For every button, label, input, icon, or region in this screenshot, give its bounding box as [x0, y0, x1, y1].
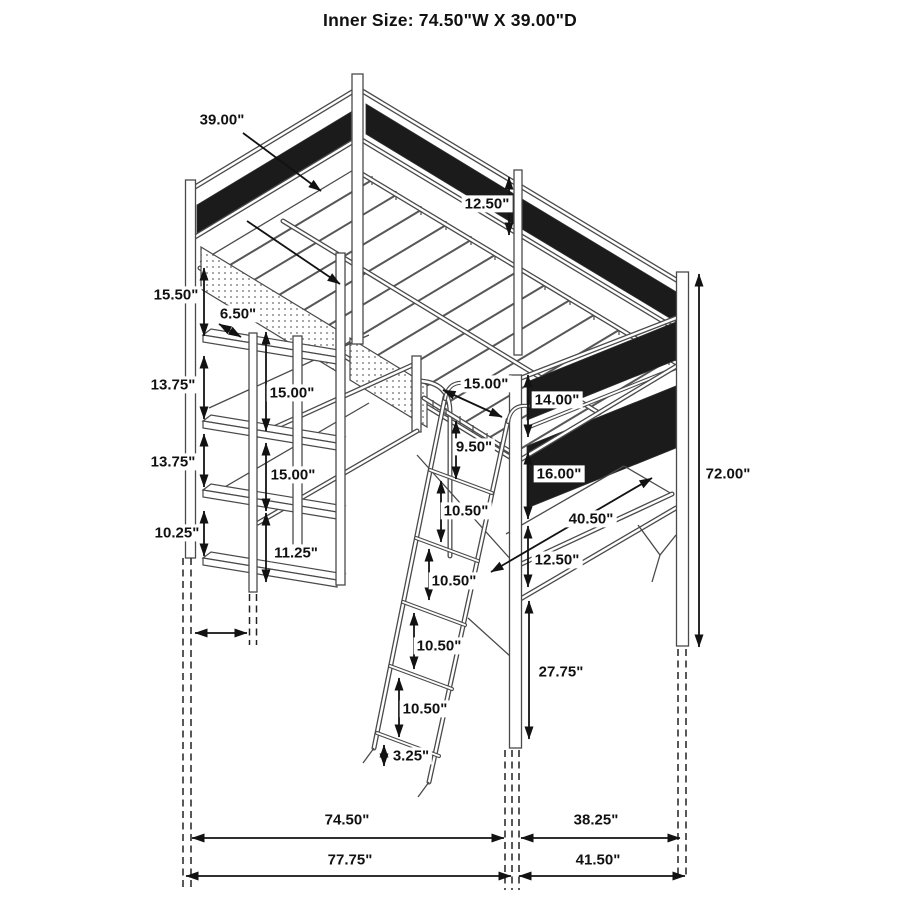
dim-label-desk-to-lower-shelf: 15.00" — [268, 466, 319, 483]
dim-label-overall-height: 72.00" — [703, 465, 754, 482]
dim-label-right-desk-width: 40.50" — [566, 510, 617, 527]
dim-label-right-leg-lower: 27.75" — [536, 663, 587, 680]
dim-label-desk-to-lower-rail: 12.50" — [532, 551, 583, 568]
dim-label-lower-shelf-height: 11.25" — [271, 544, 321, 561]
dim-label-shelf-gap-1: 13.75" — [148, 376, 199, 393]
dim-label-ladder-foot: 3.25" — [390, 747, 432, 764]
ladder — [363, 383, 528, 797]
dim-label-rail-to-ladder: 15.00" — [461, 375, 512, 392]
dim-label-guardrail-height: 12.50" — [462, 195, 513, 212]
dim-label-shelf-gap-2: 13.75" — [148, 453, 199, 470]
dim-label-leg-top-to-shelf: 15.50" — [151, 286, 202, 303]
dim-label-ladder-top-to-step: 9.50" — [453, 438, 495, 455]
dim-label-shelf-to-desk-upper: 15.00" — [267, 384, 318, 401]
dim-label-inner-width: 74.50" — [322, 811, 373, 828]
page-title: Inner Size: 74.50"W X 39.00"D — [0, 10, 900, 31]
dim-label-shelf-depth: 6.50" — [217, 305, 259, 322]
dim-label-overall-width: 77.75" — [325, 851, 376, 868]
dim-label-ladder-step-3: 10.50" — [429, 572, 480, 589]
extension-lines — [183, 558, 686, 890]
loft-bed-dimension-diagram: Inner Size: 74.50"W X 39.00"D 39.00" 12.… — [0, 0, 900, 900]
line-drawing — [0, 0, 900, 900]
arrow-bed-depth-b — [247, 221, 340, 284]
dim-label-ladder-step-5: 10.50" — [400, 700, 451, 717]
dim-label-ladder-step-2: 10.50" — [441, 502, 492, 519]
dim-label-right-panel-lower: 16.00" — [534, 465, 585, 482]
dim-label-shelf-gap-3: 10.25" — [152, 524, 203, 541]
dim-label-right-panel-upper: 14.00" — [532, 391, 583, 408]
dim-label-ladder-step-4: 10.50" — [414, 637, 465, 654]
dim-label-right-overall-depth: 41.50" — [573, 851, 624, 868]
dim-label-right-inner-depth: 38.25" — [571, 811, 622, 828]
dim-label-bed-depth: 39.00" — [197, 111, 248, 128]
